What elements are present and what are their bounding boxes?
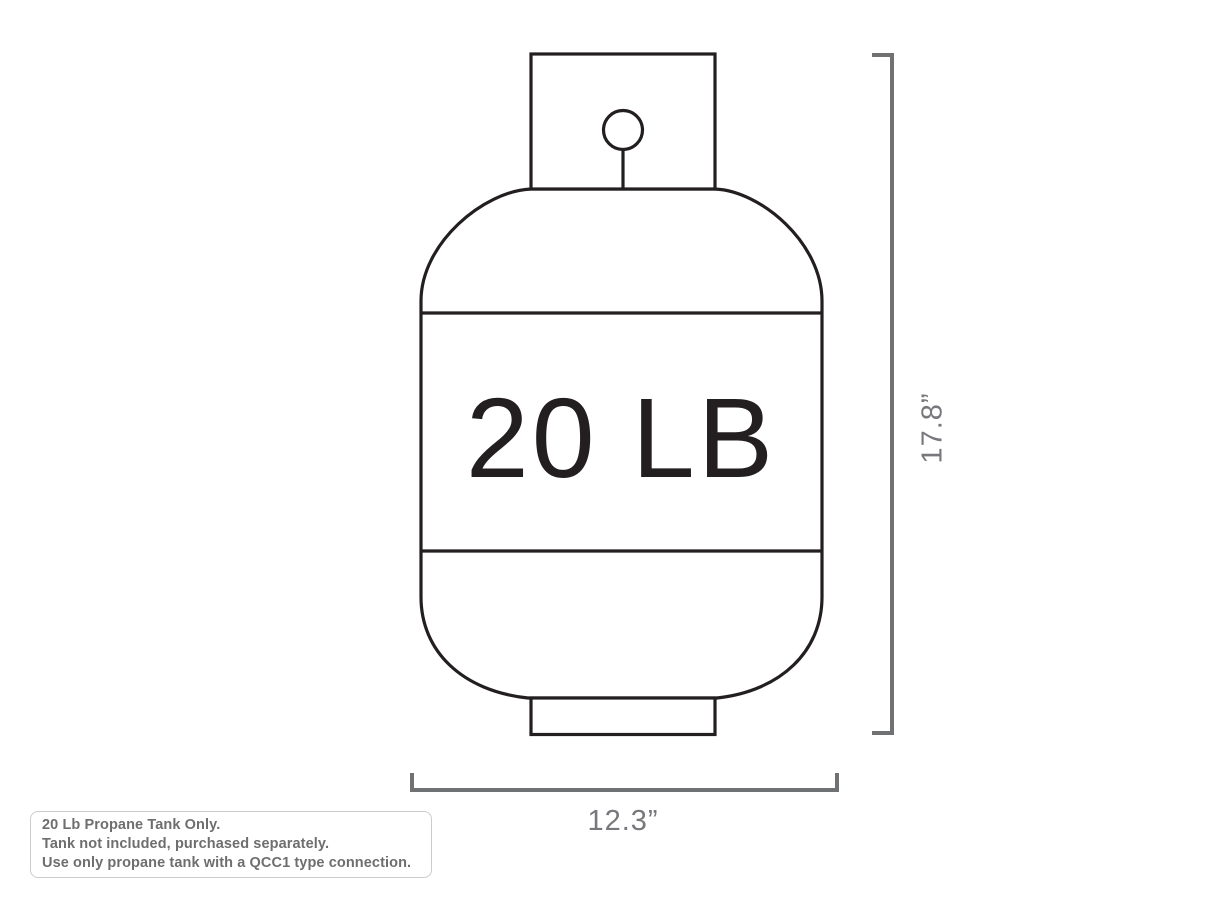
width-dimension-label: 12.3” xyxy=(587,805,658,837)
note-line-qcc1-connection: Use only propane tank with a QCC1 type c… xyxy=(42,854,421,873)
height-dimension-line xyxy=(872,54,894,734)
note-line-not-included: Tank not included, purchased separately. xyxy=(42,835,421,854)
valve-knob-circle xyxy=(604,111,643,150)
tank-capacity-label: 20 LB xyxy=(466,375,776,501)
note-line-tank-only: 20 Lb Propane Tank Only. xyxy=(42,816,421,835)
width-dimension-line xyxy=(411,773,838,792)
foot-ring xyxy=(531,698,715,735)
notes-box: 20 Lb Propane Tank Only. Tank not includ… xyxy=(30,811,432,878)
height-dimension-label: 17.8” xyxy=(917,392,949,463)
tank-drawing: 20 LB 17.8” 12.3” xyxy=(0,0,1214,911)
propane-tank-diagram: 20 LB 17.8” 12.3” 20 Lb Propane Tank Onl… xyxy=(0,0,1214,911)
